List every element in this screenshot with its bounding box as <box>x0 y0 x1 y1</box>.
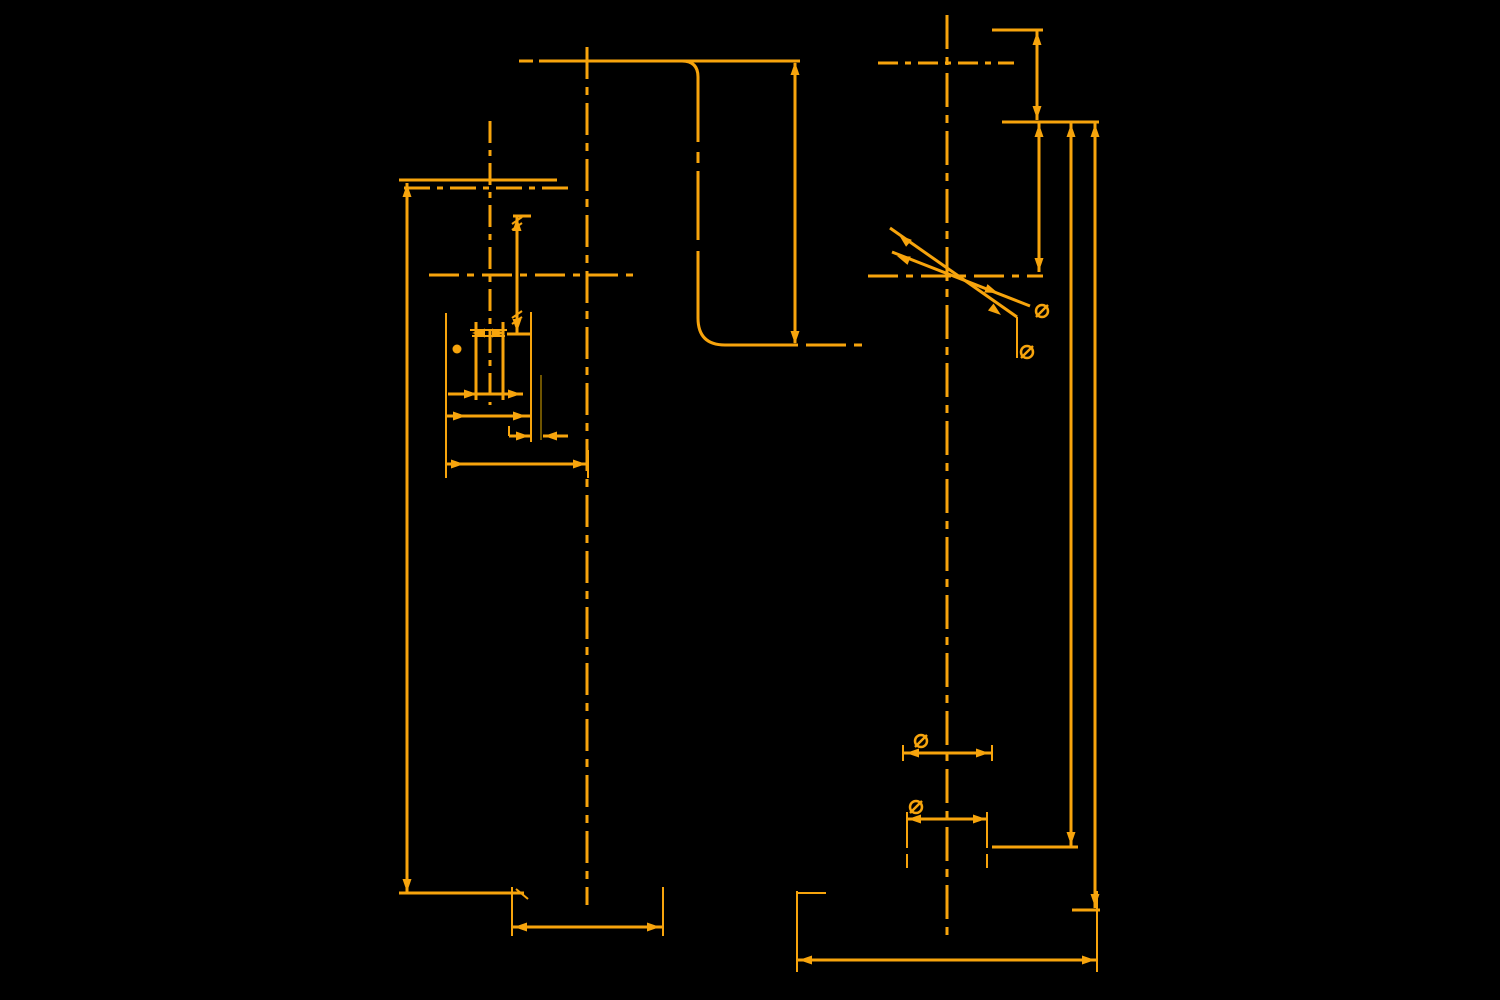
middle-profile <box>519 61 862 345</box>
dimension-arrowhead <box>908 815 921 824</box>
dimension-arrowhead <box>976 749 989 758</box>
cad-drawing <box>0 0 1500 1000</box>
dimension-arrowhead <box>1067 832 1076 845</box>
dimension-arrowhead <box>403 184 412 197</box>
dimension-arrowhead <box>799 956 812 965</box>
bend-curve <box>682 61 698 77</box>
right-view <box>797 15 1100 972</box>
dimension-arrowhead <box>1082 956 1095 965</box>
dimension-arrowhead <box>508 390 521 399</box>
dimension-arrowhead <box>1091 894 1100 907</box>
dimension-arrowhead <box>451 460 464 469</box>
bend-curve <box>698 318 725 345</box>
dimension-arrowhead <box>1067 124 1076 137</box>
dimension-arrowhead <box>573 460 586 469</box>
dimension-arrowhead <box>791 62 800 75</box>
dimension-arrowhead <box>791 331 800 344</box>
dimension-arrowhead <box>647 923 660 932</box>
dimension-arrowhead <box>973 815 986 824</box>
dimension-arrowhead <box>453 412 466 421</box>
dimension-arrowhead <box>1033 106 1042 119</box>
dimension-arrowhead <box>1035 258 1044 271</box>
dimension-arrowhead <box>513 412 526 421</box>
dimension-arrowhead <box>1035 124 1044 137</box>
diameter-symbol-icon <box>915 735 927 747</box>
dimension-arrowhead <box>403 879 412 892</box>
center-dot <box>453 345 462 354</box>
dimension-arrowhead <box>906 749 919 758</box>
dimension-arrowhead <box>544 432 557 441</box>
drawing-line <box>892 252 1030 306</box>
left-view <box>399 47 663 936</box>
dimension-arrowhead <box>513 319 522 332</box>
dimension-arrowhead <box>1033 32 1042 45</box>
diameter-symbol-icon <box>1036 305 1048 317</box>
diameter-symbol-icon <box>1021 346 1033 358</box>
dimension-arrowhead <box>514 923 527 932</box>
dimension-arrowhead <box>516 432 529 441</box>
dimension-arrowhead <box>1091 124 1100 137</box>
diameter-symbol-icon <box>910 801 922 813</box>
cad-stage <box>0 0 1500 1000</box>
